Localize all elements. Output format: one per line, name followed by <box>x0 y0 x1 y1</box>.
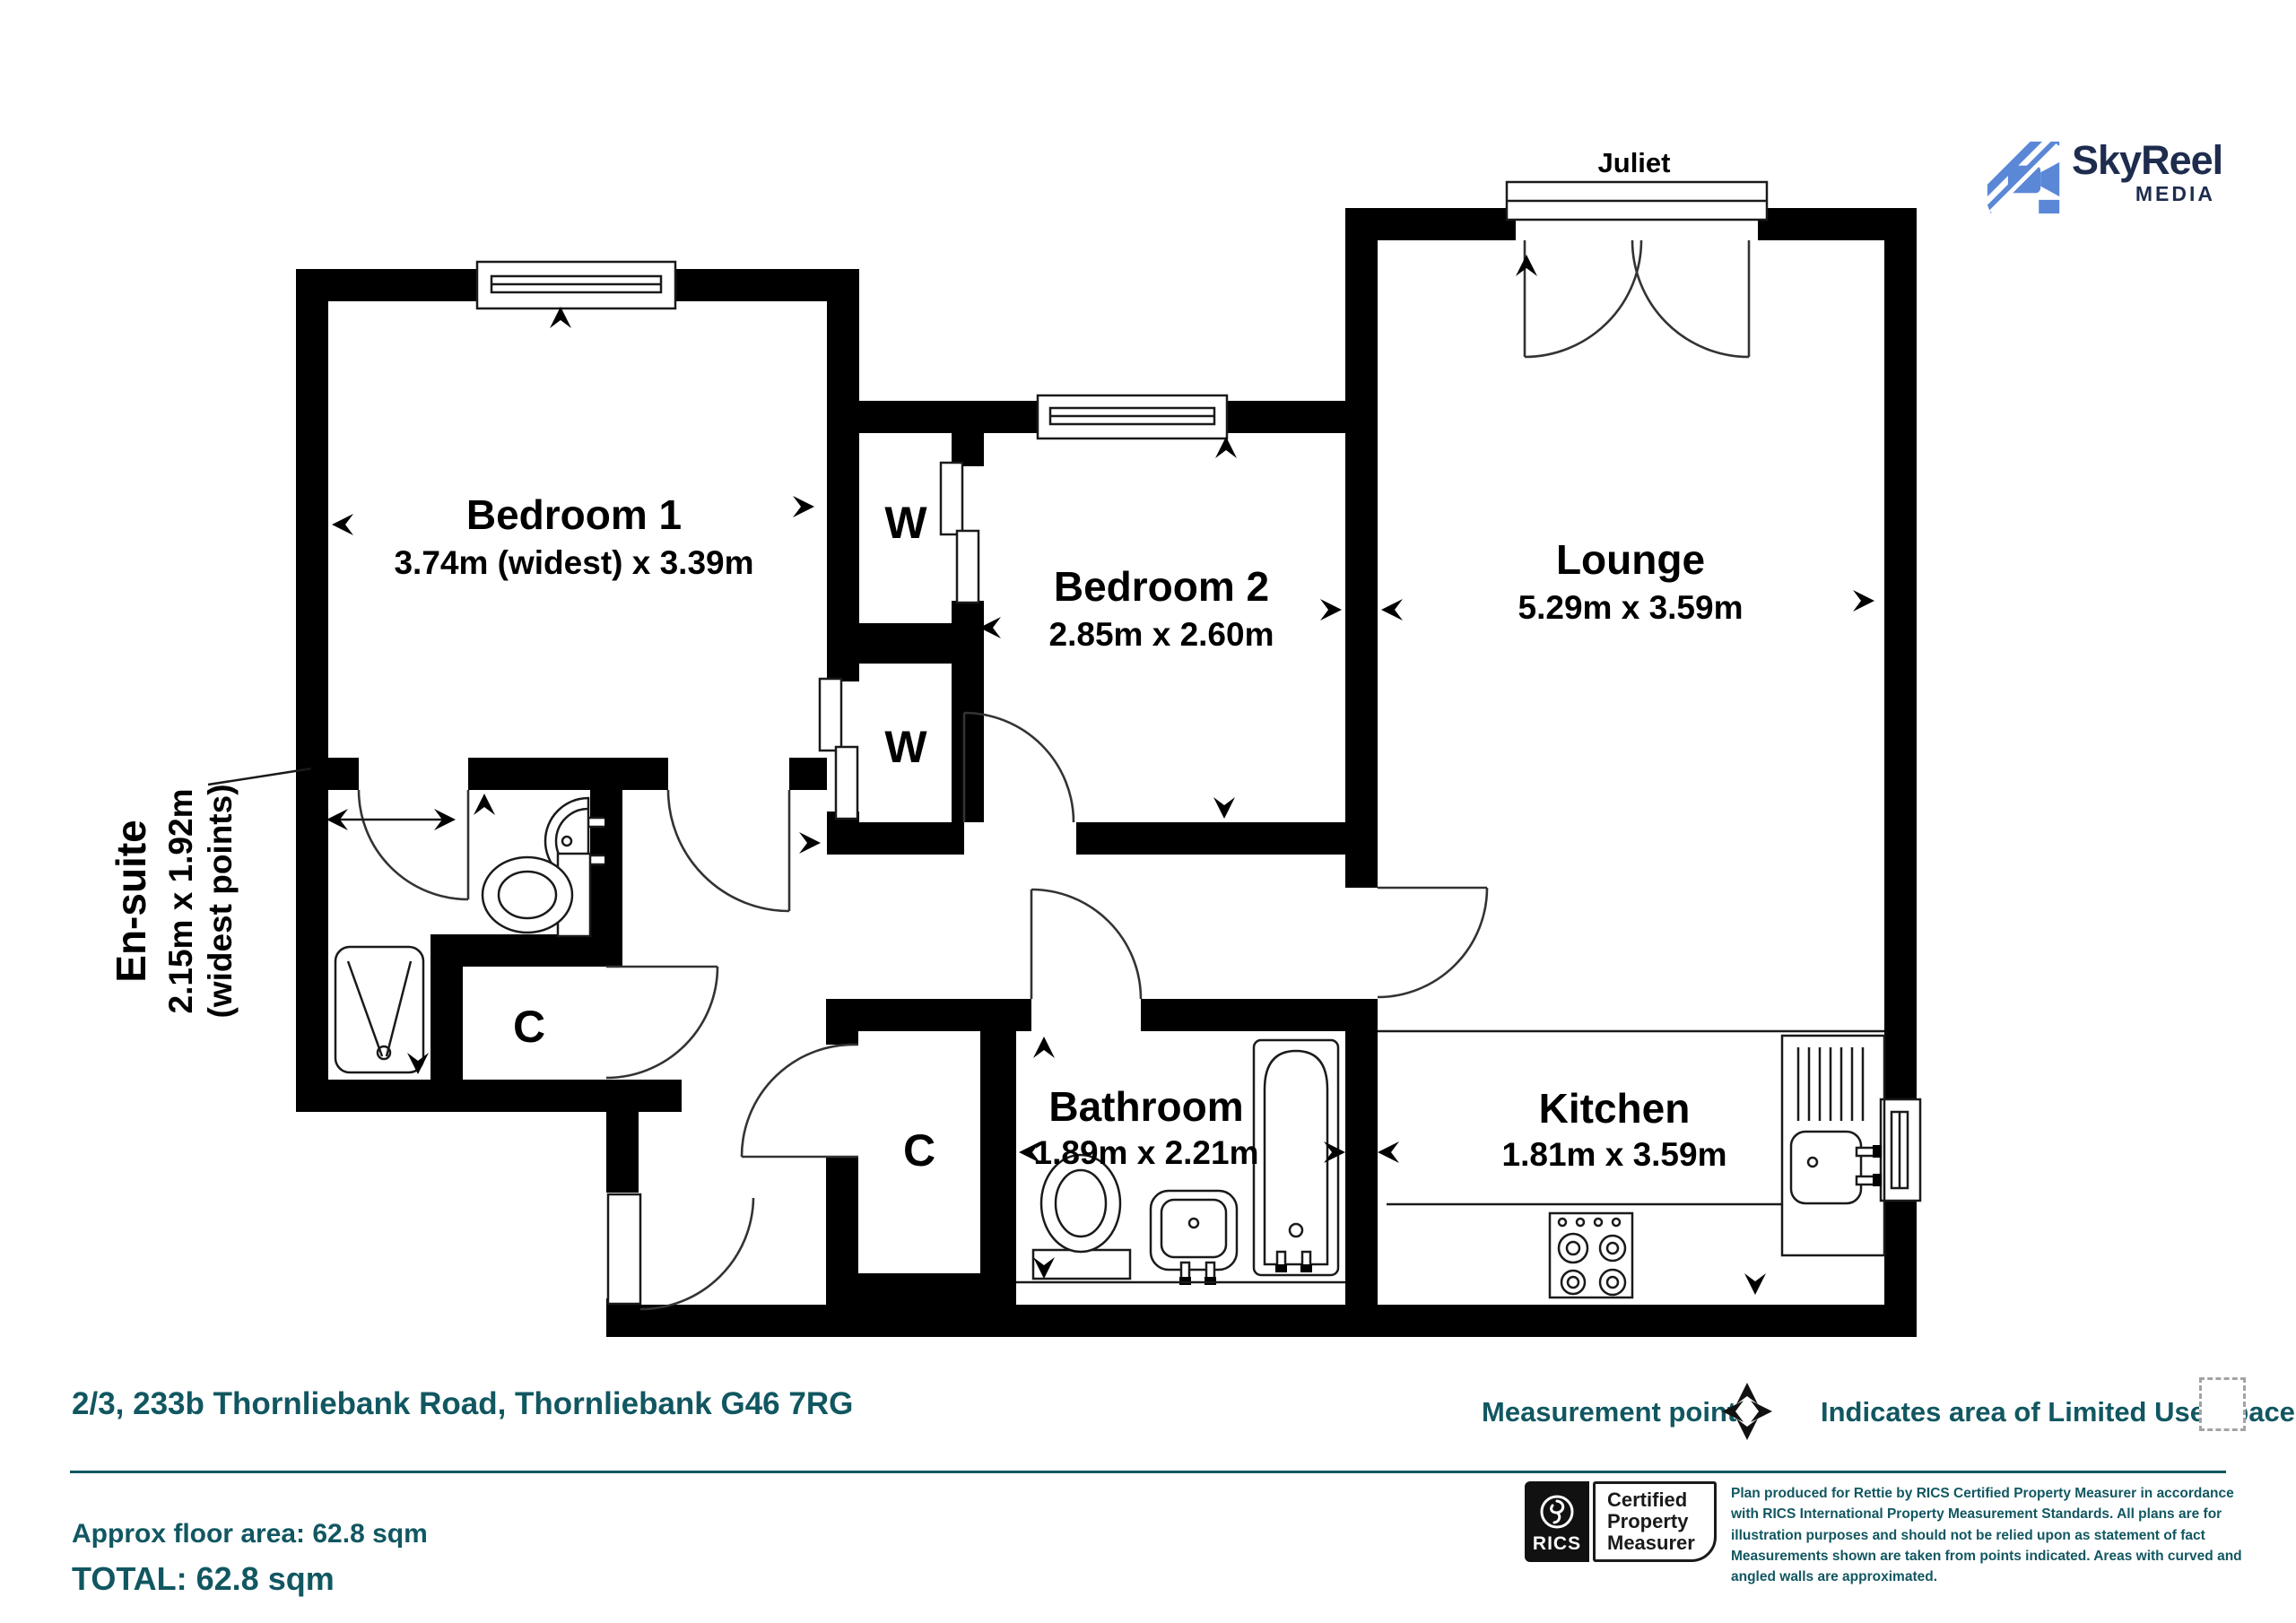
door-cupboard-1 <box>606 967 717 1078</box>
window-kitchen <box>1881 1099 1920 1201</box>
door-ensuite <box>359 790 468 899</box>
ensuite-toilet-icon <box>483 854 590 936</box>
door-lounge <box>1378 888 1487 997</box>
footer-divider <box>70 1471 2226 1473</box>
ensuite-shower-icon <box>335 947 423 1072</box>
room-dims-bedroom1: 3.74m (widest) x 3.39m <box>394 544 753 581</box>
skyreel-video-camera-icon <box>1986 140 2063 217</box>
room-label-lounge: Lounge <box>1556 536 1705 583</box>
bathroom-bath-icon <box>1254 1040 1338 1275</box>
room-dims-lounge: 5.29m x 3.59m <box>1518 589 1744 626</box>
rics-badge-line: Measurer <box>1607 1532 1714 1554</box>
room-dims-bathroom: 1.89m x 2.21m <box>1034 1134 1259 1171</box>
juliet-balcony <box>1507 182 1767 357</box>
wardrobe-label-2: W <box>884 722 927 772</box>
skyreel-name: SkyReel <box>2072 140 2222 180</box>
plan-disclaimer: Plan produced for Rettie by RICS Certifi… <box>1731 1483 2260 1587</box>
limited-use-space-swatch <box>2199 1377 2246 1431</box>
room-label-kitchen: Kitchen <box>1539 1085 1691 1132</box>
balcony-label: Juliet <box>1598 147 1671 178</box>
ensuite-measure-arrow <box>326 809 456 830</box>
door-entry <box>608 1194 753 1309</box>
bathroom-sink-icon <box>1151 1191 1237 1285</box>
rics-logo: RICS <box>1525 1481 1589 1562</box>
approx-floor-area: Approx floor area: 62.8 sqm <box>72 1519 428 1549</box>
measurement-point-label: Measurement point <box>1482 1396 1736 1428</box>
total-floor-area: TOTAL: 62.8 sqm <box>72 1560 335 1598</box>
door-cupboard-2 <box>742 1045 858 1157</box>
window-bedroom1 <box>477 262 675 308</box>
window-bedroom2 <box>1038 395 1227 438</box>
room-label-ensuite: En-suite <box>108 820 154 982</box>
rics-certified-badge: Certified Property Measurer <box>1593 1481 1717 1562</box>
rics-badge-line: Certified <box>1607 1489 1714 1511</box>
cupboard-label-2: C <box>903 1125 935 1176</box>
rics-badge-line: Property <box>1607 1511 1714 1532</box>
door-bedroom1 <box>668 790 789 911</box>
rics-brand: RICS <box>1533 1533 1581 1555</box>
rics-lion-icon <box>1537 1492 1577 1533</box>
room-label-bathroom: Bathroom <box>1048 1083 1243 1130</box>
wardrobe-label-1: W <box>884 498 927 548</box>
kitchen-sink-icon <box>1791 1047 1882 1203</box>
skyreel-logo: SkyReel MEDIA <box>1986 140 2222 217</box>
skyreel-media: MEDIA <box>2072 184 2215 204</box>
bathroom-toilet-icon <box>1033 1155 1130 1279</box>
kitchen-hob-icon <box>1550 1213 1632 1298</box>
room-dims-ensuite: 2.15m x 1.92m <box>162 789 199 1014</box>
floor-plan: Juliet Bedroom 1 3.74m (widest) x 3.39m … <box>0 0 2296 1623</box>
room-note-ensuite: (widest points) <box>202 784 239 1018</box>
room-dims-bedroom2: 2.85m x 2.60m <box>1049 616 1274 653</box>
room-label-bedroom2: Bedroom 2 <box>1054 563 1269 610</box>
room-dims-kitchen: 1.81m x 3.59m <box>1502 1136 1727 1173</box>
door-bathroom <box>1031 890 1141 999</box>
room-label-bedroom1: Bedroom 1 <box>466 491 682 538</box>
property-address: 2/3, 233b Thornliebank Road, Thornlieban… <box>72 1386 853 1422</box>
cupboard-label-1: C <box>513 1002 545 1052</box>
measurement-point-icon <box>1718 1381 1776 1442</box>
